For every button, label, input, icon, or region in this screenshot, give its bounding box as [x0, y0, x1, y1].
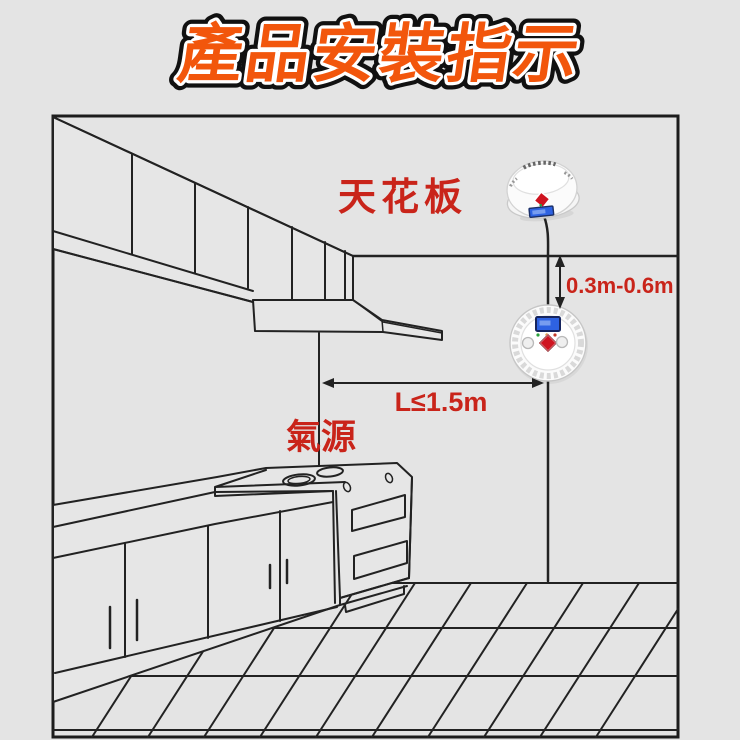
horizontal-distance-label: L≤1.5m: [395, 387, 488, 417]
installation-instruction-page: 產品安裝指示 產品安裝指示: [0, 0, 740, 740]
page-title-text: 產品安裝指示: [174, 18, 586, 90]
vertical-distance-label: 0.3m-0.6m: [566, 273, 674, 298]
side-button: [523, 338, 534, 349]
gas-source-label: 氣源: [286, 418, 356, 457]
side-button: [557, 337, 568, 348]
indicator-led: [553, 333, 556, 336]
wall-detector-icon: [510, 305, 588, 384]
installation-diagram: 產品安裝指示 產品安裝指示: [0, 0, 740, 740]
indicator-led: [536, 333, 539, 336]
page-title: 產品安裝指示 產品安裝指示: [174, 18, 586, 90]
ceiling-label: 天花板: [338, 177, 467, 219]
